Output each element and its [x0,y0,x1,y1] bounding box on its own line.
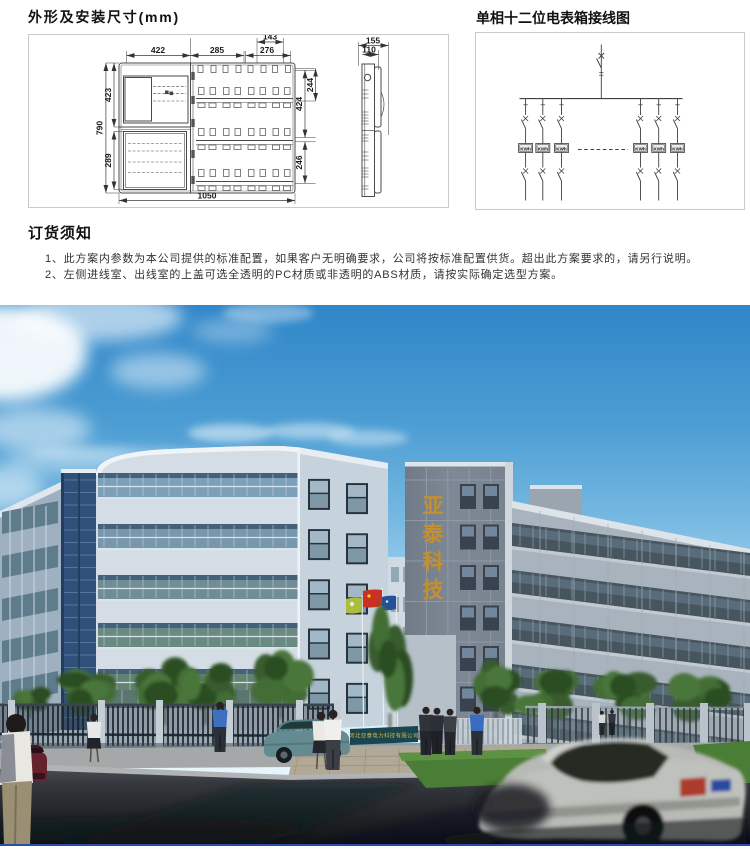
svg-text:790: 790 [95,121,105,135]
svg-text:技: 技 [423,579,445,602]
svg-text:河北亚泰电力科技有限公司: 河北亚泰电力科技有限公司 [349,732,419,740]
svg-text:110: 110 [362,45,376,55]
svg-text:289: 289 [103,153,113,167]
svg-text:422: 422 [151,45,165,55]
svg-text:泰: 泰 [422,523,445,546]
svg-text:亚: 亚 [423,495,444,518]
svg-text:276: 276 [260,45,274,55]
svg-text:KWh: KWh [556,147,567,152]
svg-text:KWh: KWh [538,147,549,152]
svg-text:KWh: KWh [635,147,646,152]
svg-text:423: 423 [103,88,113,102]
svg-text:424: 424 [294,97,304,111]
svg-text:KWh: KWh [653,147,664,152]
svg-text:KWh: KWh [520,147,531,152]
svg-text:1050: 1050 [198,191,217,201]
svg-text:246: 246 [294,155,304,169]
svg-text:285: 285 [210,45,224,55]
svg-text:244: 244 [305,78,315,92]
svg-text:143: 143 [263,35,277,42]
svg-text:KWh: KWh [672,147,683,152]
svg-text:科: 科 [423,550,444,574]
